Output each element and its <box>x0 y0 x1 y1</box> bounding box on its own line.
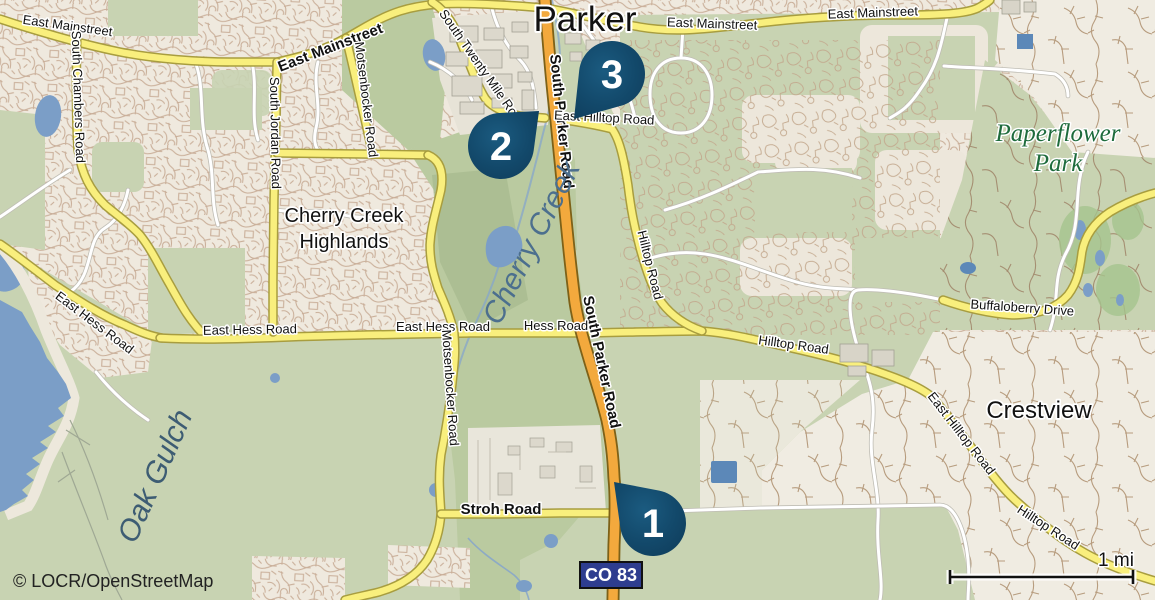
svg-text:East Mainstreet: East Mainstreet <box>827 3 918 21</box>
svg-text:3: 3 <box>601 53 623 97</box>
svg-text:Cherry Creek: Cherry Creek <box>285 205 405 227</box>
svg-text:Paperflower: Paperflower <box>995 120 1121 147</box>
svg-text:CO 83: CO 83 <box>585 565 637 585</box>
svg-text:Highlands: Highlands <box>300 231 389 253</box>
svg-text:East Hess Road: East Hess Road <box>203 321 297 338</box>
svg-text:2: 2 <box>490 125 512 169</box>
svg-text:South Jordan Road: South Jordan Road <box>267 77 284 189</box>
svg-text:Hess Road: Hess Road <box>524 318 588 333</box>
svg-text:Crestview: Crestview <box>986 397 1092 424</box>
svg-text:East Mainstreet: East Mainstreet <box>667 14 758 32</box>
svg-text:Stroh Road: Stroh Road <box>461 501 542 518</box>
svg-text:1: 1 <box>642 502 664 546</box>
svg-text:Park: Park <box>1033 150 1084 177</box>
svg-text:1 mi: 1 mi <box>1098 550 1134 571</box>
svg-text:Parker: Parker <box>533 0 636 39</box>
svg-text:© LOCR/OpenStreetMap: © LOCR/OpenStreetMap <box>13 571 213 591</box>
